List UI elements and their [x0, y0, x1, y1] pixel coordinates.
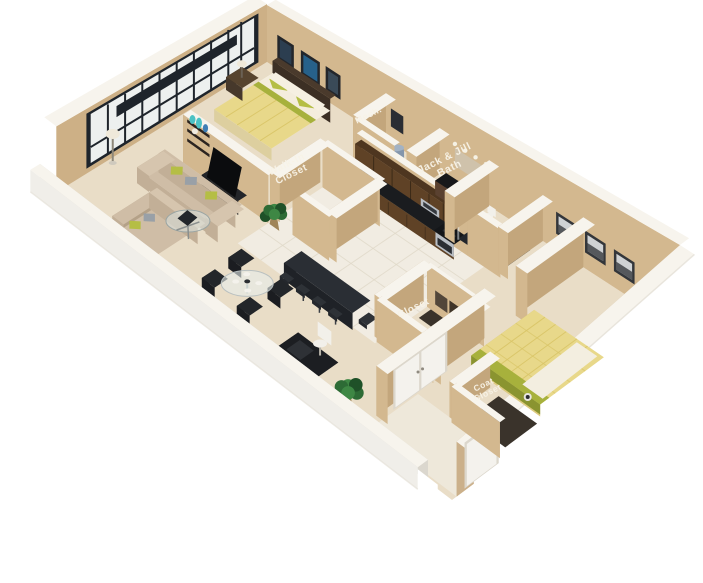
floor-plan-3d-scene: Walk-InClosetMech.Jack & JillBathClosetC… [0, 0, 703, 583]
floor-plan-render: Walk-InClosetMech.Jack & JillBathClosetC… [0, 0, 703, 583]
